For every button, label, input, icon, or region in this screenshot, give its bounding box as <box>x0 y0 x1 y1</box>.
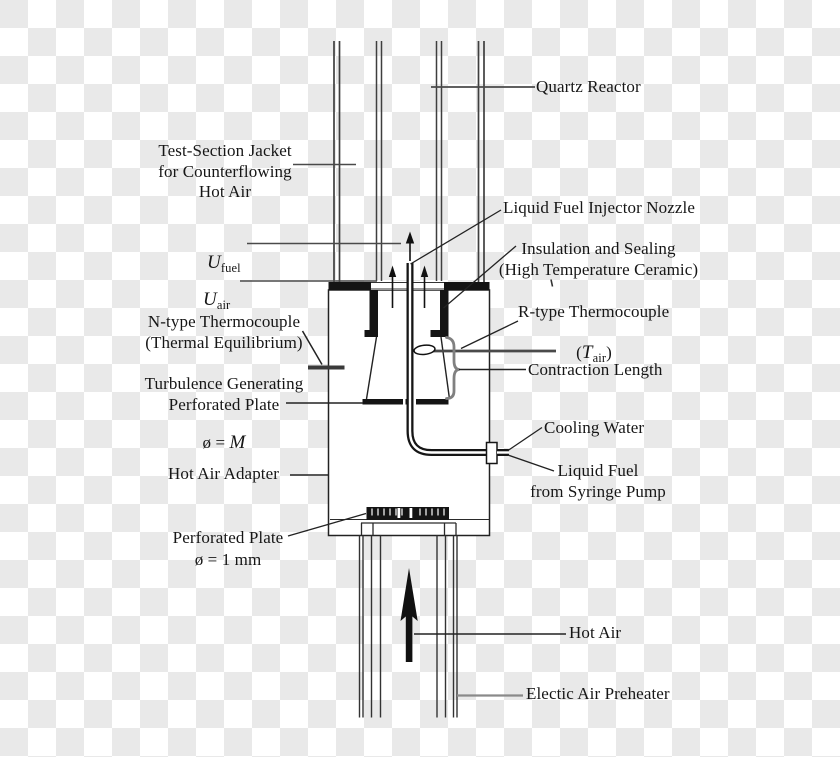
schematic-diagram: Quartz Reactor Test-Section Jacket for C… <box>0 0 840 757</box>
turbulence-plate-label: Turbulence Generating Perforated Plate <box>142 374 306 415</box>
hot-air-adapter-label: Hot Air Adapter <box>168 464 279 485</box>
perforated-plate-bar <box>367 507 450 520</box>
turbulence-plate-diameter-label: ø = M <box>142 412 306 453</box>
test-section-jacket-tube <box>334 41 484 283</box>
contraction-length-label: Contraction Length <box>528 360 662 381</box>
wall-fitting <box>487 443 498 464</box>
hot-air-arrow <box>401 568 418 662</box>
u-air-subscript: air <box>217 298 230 312</box>
leader-injector-nozzle <box>411 210 502 264</box>
cooling-water-label: Cooling Water <box>544 418 644 439</box>
injector-nozzle-label: Liquid Fuel Injector Nozzle <box>503 198 695 219</box>
fuel-flow-arrow <box>406 232 414 262</box>
m-symbol: M <box>230 432 246 453</box>
perforated-plate-label: Perforated Plate ø = 1 mm <box>166 527 290 570</box>
air-preheater-label: Electic Air Preheater <box>526 684 670 705</box>
n-type-thermocouple-probe <box>308 366 345 370</box>
leader-cooling-water <box>508 428 542 451</box>
insulation-label: Insulation and Sealing (High Temperature… <box>491 238 706 280</box>
u-air-label: Uair <box>203 269 230 315</box>
u-air-symbol: U <box>203 289 217 310</box>
liquid-fuel-supply-label: Liquid Fuel from Syringe Pump <box>528 460 668 502</box>
hot-air-label: Hot Air <box>569 623 621 644</box>
r-type-thermocouple-label: R-type Thermocouple <box>518 302 669 323</box>
stray-mark <box>551 280 553 287</box>
diagram-linework <box>0 0 840 757</box>
quartz-reactor-label: Quartz Reactor <box>536 77 641 98</box>
n-type-thermocouple-label: N-type Thermocouple (Thermal Equilibrium… <box>142 312 306 353</box>
test-section-jacket-label: Test-Section Jacket for Counterflowing H… <box>140 141 310 203</box>
